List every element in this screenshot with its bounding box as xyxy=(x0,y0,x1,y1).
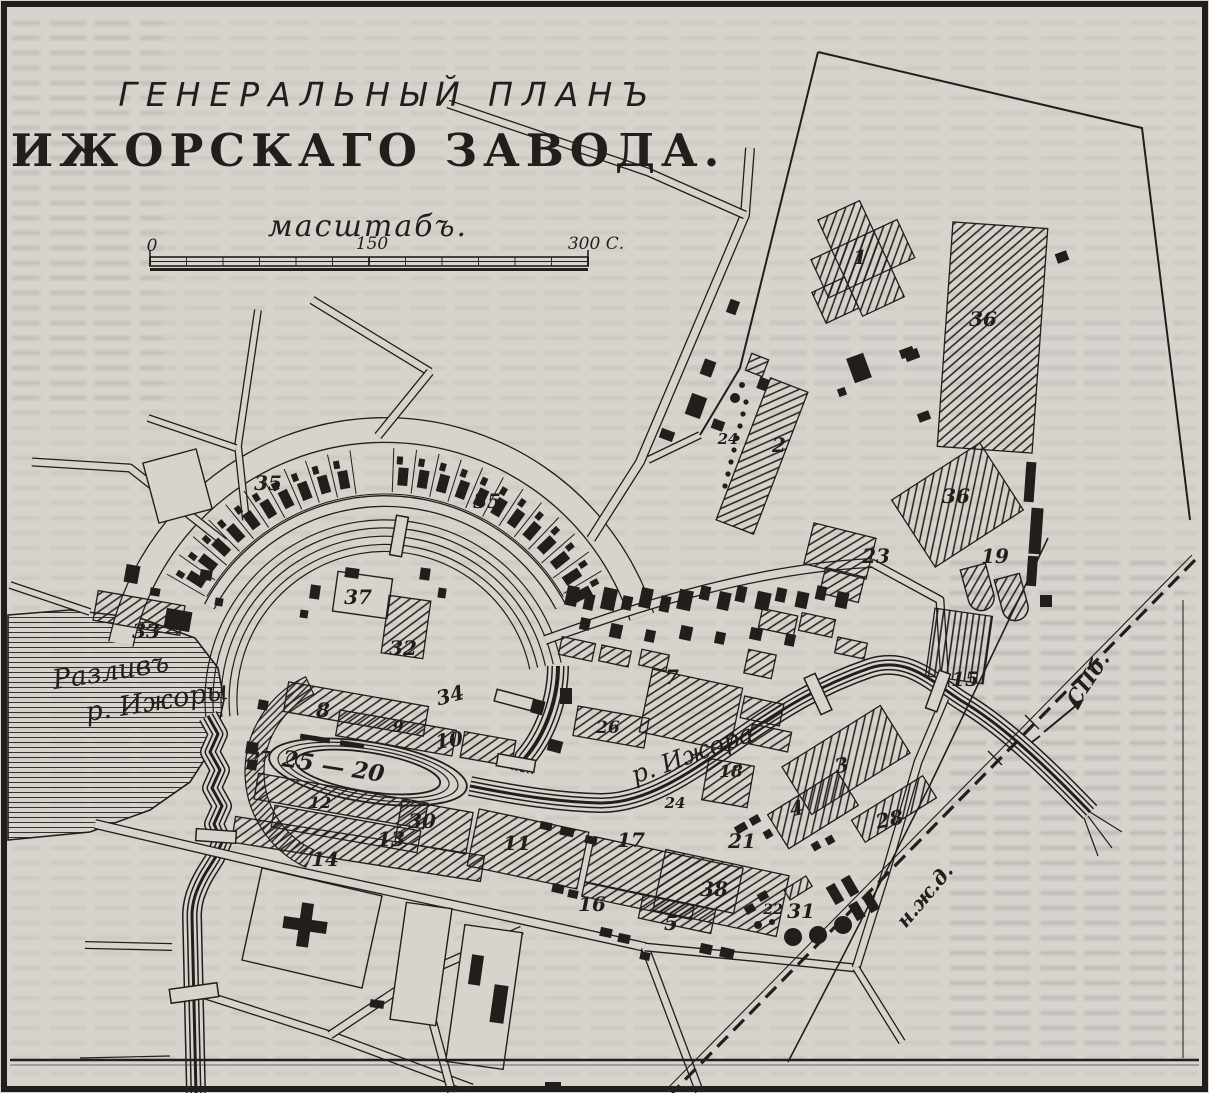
map-graphic xyxy=(769,919,775,925)
building-number: 33 xyxy=(132,619,160,643)
map-graphic xyxy=(731,447,736,452)
map-graphic xyxy=(397,467,408,486)
building-number: 36 xyxy=(942,484,970,508)
map-graphic xyxy=(196,829,237,844)
izhora-factory-general-plan-map: 3535333732341362423623191528341824211738… xyxy=(0,0,1209,1093)
building-number: 24 xyxy=(717,430,739,448)
building-number: 7 xyxy=(665,665,679,689)
map-graphic xyxy=(12,12,162,412)
building-number: 12 xyxy=(309,793,331,812)
building-number: 9 xyxy=(392,717,403,736)
map-graphic xyxy=(419,567,431,580)
map-graphic xyxy=(397,456,404,464)
building-number: 11 xyxy=(503,831,531,855)
building-number: 10 xyxy=(434,726,465,754)
map-graphic xyxy=(299,609,308,618)
map-graphic xyxy=(739,382,745,388)
building-number: 18 xyxy=(719,762,743,782)
building-number: 21 xyxy=(727,829,756,853)
map-graphic xyxy=(754,921,762,929)
map-graphic xyxy=(737,423,742,428)
map-graphic xyxy=(309,584,321,599)
map-graphic xyxy=(1040,595,1052,607)
building-number: 30 xyxy=(408,809,436,833)
map-graphic xyxy=(149,587,160,597)
building-number: 36 xyxy=(969,307,997,331)
building-number: 13 xyxy=(377,827,405,851)
map-graphic xyxy=(834,916,852,934)
map-graphic xyxy=(725,471,730,476)
building-number: 37 xyxy=(344,585,372,609)
map-page: 3535333732341362423623191528341824211738… xyxy=(0,0,1209,1093)
building-number: 23 xyxy=(861,544,890,568)
map-graphic xyxy=(560,688,572,704)
building-number: 24 xyxy=(664,794,686,812)
building-number: 38 xyxy=(700,877,728,901)
scale-tick-150: 150 xyxy=(356,234,389,254)
building-number: 22 xyxy=(762,902,783,918)
building-number: 19 xyxy=(981,544,1009,568)
map-graphic xyxy=(744,649,776,678)
building-number: 17 xyxy=(617,828,645,852)
map-graphic xyxy=(809,926,827,944)
map-graphic xyxy=(85,945,172,947)
map-graphic xyxy=(937,222,1047,453)
map-title-line1: ГЕНЕРАЛЬНЫЙ ПЛАНЪ xyxy=(118,74,657,114)
map-graphic xyxy=(728,459,733,464)
building-number: 16 xyxy=(578,892,606,916)
building-number: 35 xyxy=(473,489,501,513)
building-number: 14 xyxy=(311,847,339,871)
scale-tick-300: 300 С. xyxy=(568,234,624,254)
map-graphic xyxy=(743,399,748,404)
building-number: 5 xyxy=(664,911,678,935)
map-graphic xyxy=(214,597,223,606)
map-title-line2: ИЖОРСКАГО ЗАВОДА. xyxy=(11,124,726,177)
building-number: 2 xyxy=(771,433,786,457)
map-graphic xyxy=(257,699,269,711)
scale-tick-0: 0 xyxy=(147,236,158,256)
map-graphic xyxy=(749,627,763,641)
building-number: 15 xyxy=(951,667,979,691)
map-graphic xyxy=(344,567,359,579)
map-graphic xyxy=(1026,556,1038,587)
map-graphic xyxy=(437,587,446,598)
map-graphic xyxy=(784,928,802,946)
building-number: 32 xyxy=(389,636,417,660)
map-graphic xyxy=(199,569,213,581)
building-number: 31 xyxy=(787,899,815,923)
building-number: 26 xyxy=(595,718,620,738)
map-graphic xyxy=(730,393,740,403)
building-number: 8 xyxy=(315,698,330,722)
map-graphic xyxy=(740,411,745,416)
map-graphic xyxy=(722,483,727,488)
building-number: 27 xyxy=(249,748,271,766)
building-number: 1 xyxy=(853,245,867,269)
building-number: 35 xyxy=(254,471,282,495)
